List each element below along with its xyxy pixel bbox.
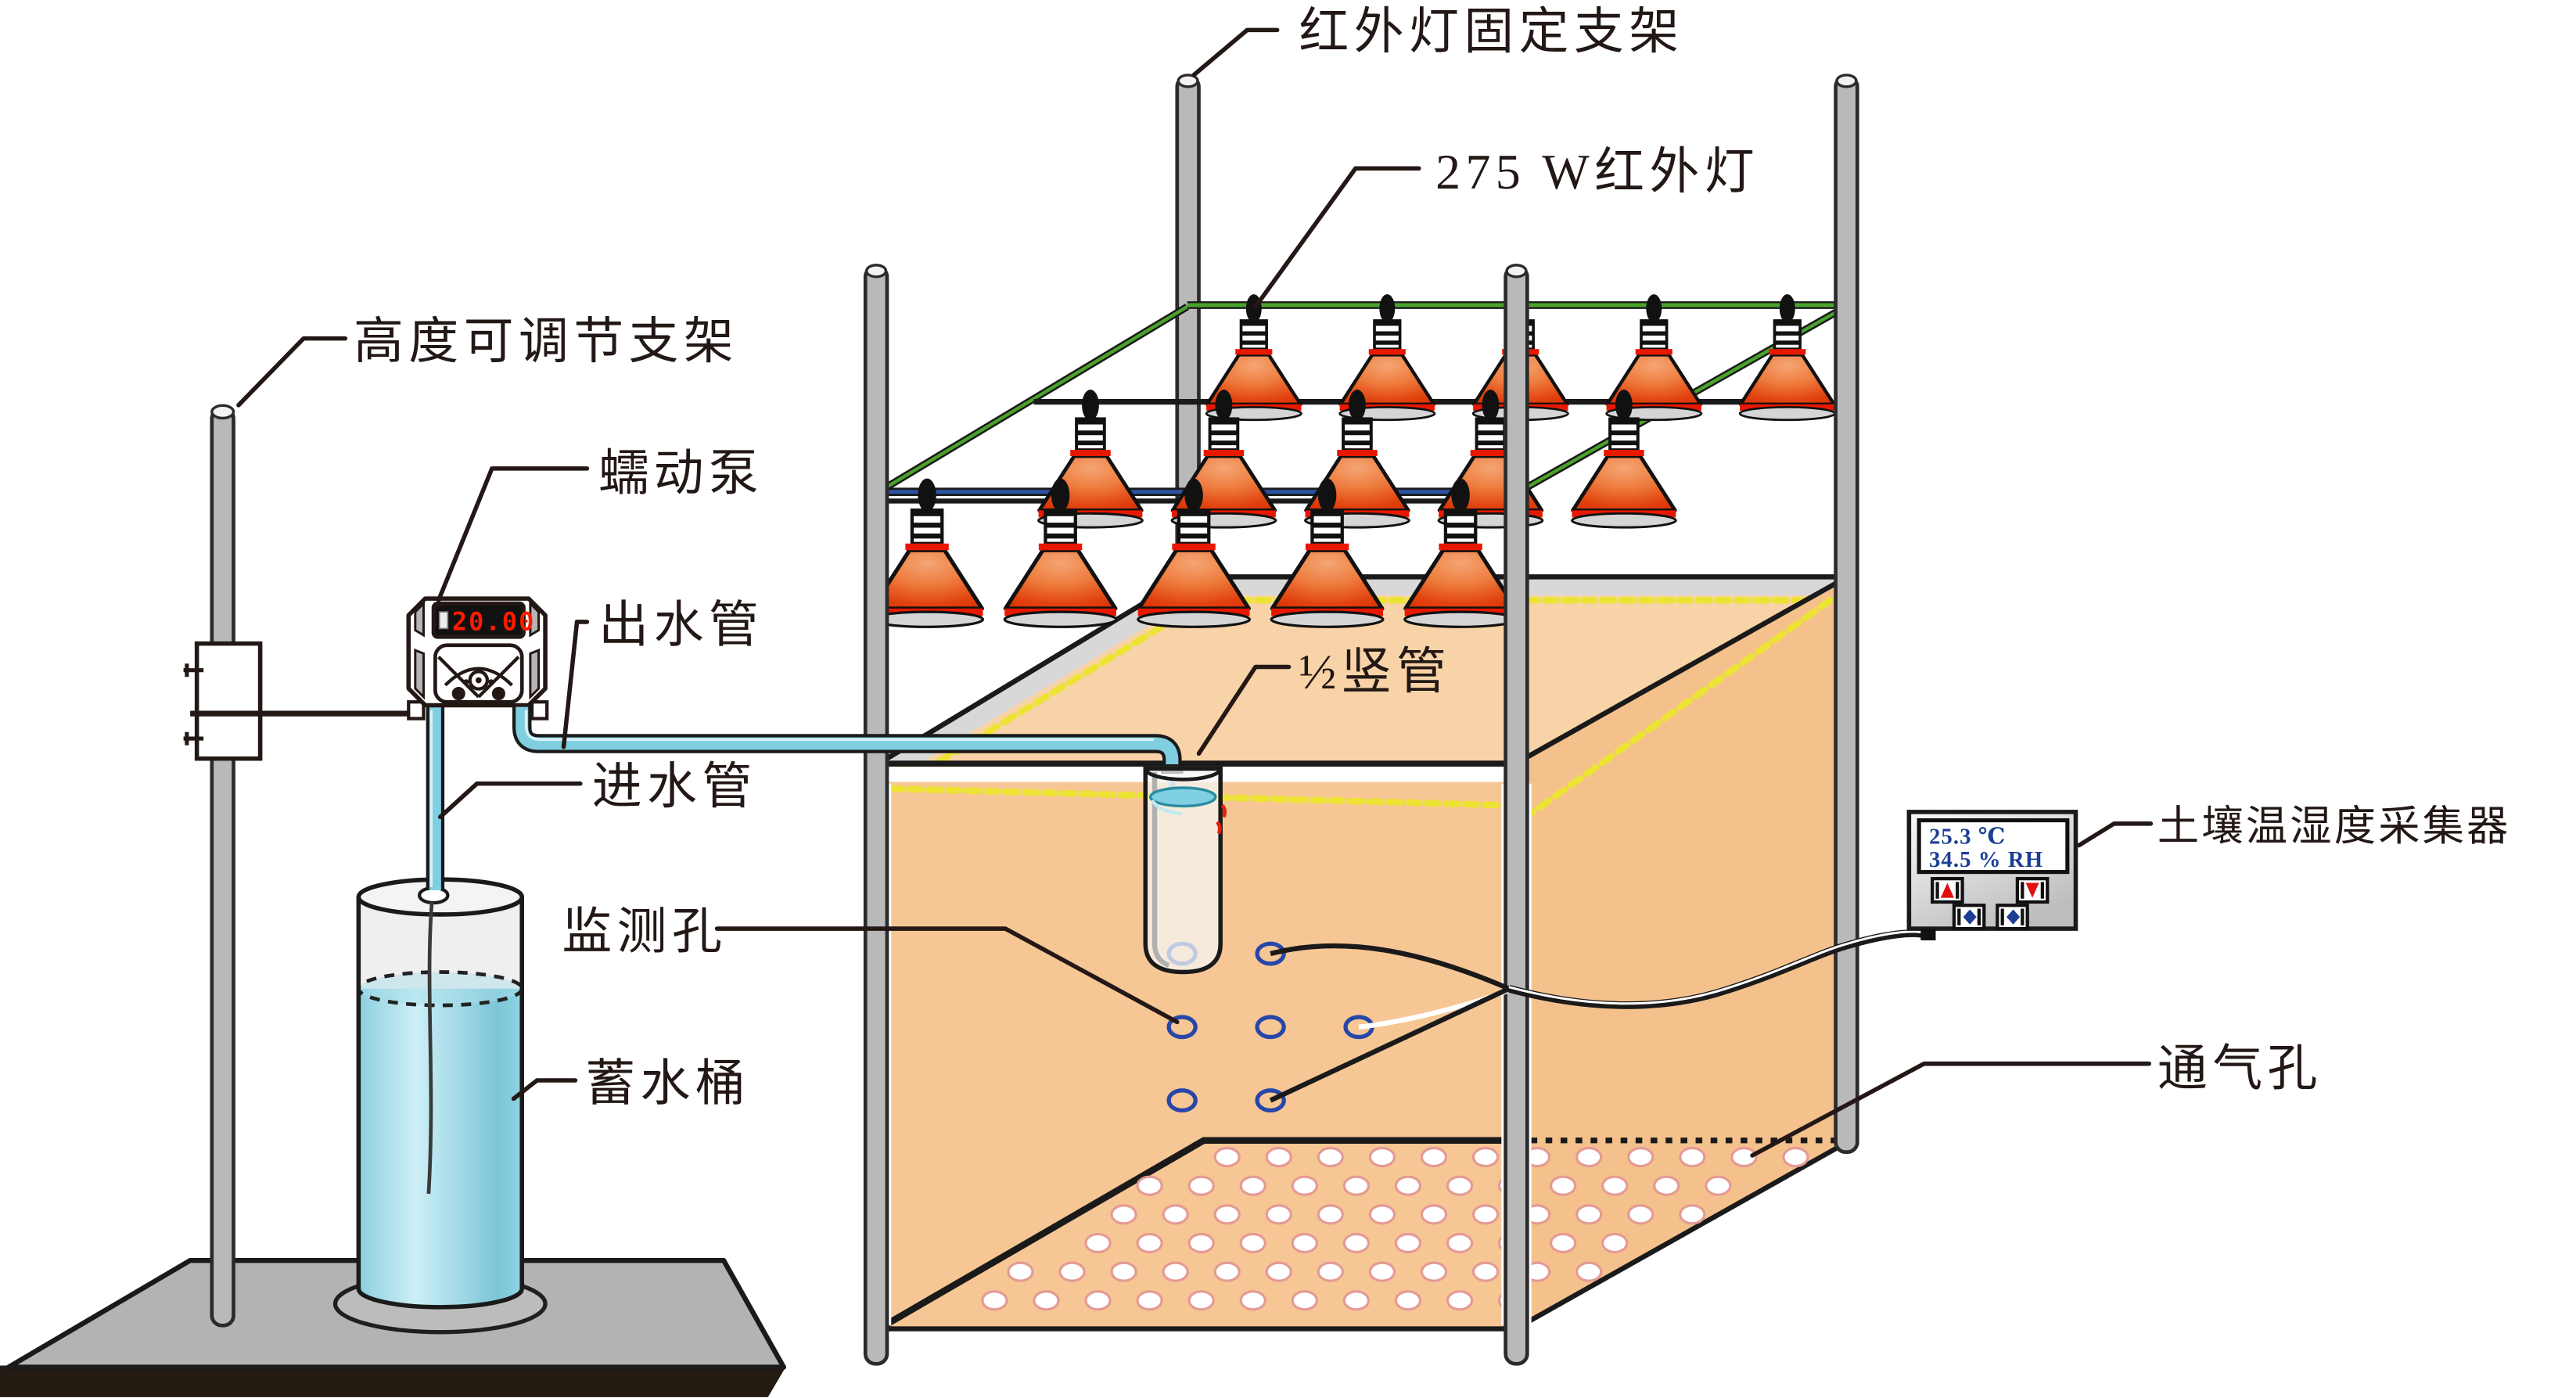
vent-hole [1473, 1148, 1497, 1166]
lamp-cone [1406, 550, 1516, 609]
lamp-hook-icon [1216, 390, 1233, 421]
vent-hole [1421, 1148, 1446, 1166]
vent-hole [1396, 1234, 1420, 1252]
leader-infrared-lamp [1256, 168, 1419, 307]
pump-head [435, 645, 522, 702]
socket-stripe [1241, 321, 1267, 326]
frame-pole-front-left [865, 267, 887, 1364]
sensor-button-left[interactable] [1954, 905, 1984, 929]
lamp-hook-icon [1082, 390, 1099, 421]
lamp-hook-icon [1482, 390, 1500, 421]
stand-pole-cap [212, 405, 234, 418]
frame-pole-front-right [1506, 267, 1528, 1364]
apparatus-diagram: 20.00 [0, 0, 2576, 1398]
socket-stripe [1610, 419, 1638, 424]
bucket-water [358, 989, 522, 1307]
lamp-bulb-face [1138, 612, 1250, 627]
socket-stripe [1343, 440, 1371, 445]
vent-hole [1706, 1177, 1730, 1195]
vent-hole [1447, 1234, 1471, 1252]
socket-stripe [1241, 332, 1267, 336]
vent-hole [1551, 1177, 1575, 1195]
socket-stripe [1076, 430, 1105, 435]
lamp-collar [1306, 544, 1349, 551]
socket-stripe [1446, 523, 1475, 527]
socket-stripe [1446, 534, 1475, 538]
lamp-cone [1272, 550, 1382, 609]
socket-stripe [1477, 419, 1505, 424]
vent-hole [1447, 1177, 1471, 1195]
pump-foot-left [408, 702, 423, 718]
vent-hole [1577, 1148, 1601, 1166]
vent-hole [1370, 1148, 1394, 1166]
label-outlet: 出水管 [598, 598, 763, 653]
socket-stripe [1045, 510, 1075, 516]
socket-stripe [1179, 510, 1209, 516]
pump-display-indicator [440, 612, 448, 628]
lamp-hook-icon [1646, 294, 1662, 322]
leader-lamp-bracket [1194, 30, 1277, 75]
label-standpipe: ½竖管 [1299, 644, 1451, 699]
socket-stripe [1610, 430, 1638, 435]
lamp-bulb-face [1572, 513, 1676, 527]
inlet-tube [431, 707, 435, 890]
stand-pole [212, 408, 234, 1325]
vent-hole [1396, 1292, 1420, 1310]
vent-hole [1473, 1206, 1497, 1224]
leader-adjustable-stand [239, 339, 345, 405]
vent-hole [1215, 1148, 1239, 1166]
lamp-bulb-face [1405, 612, 1517, 627]
vent-hole [1215, 1206, 1239, 1224]
vent-hole [1629, 1148, 1653, 1166]
lamp-bulb-face [1004, 612, 1116, 627]
vent-hole [1241, 1292, 1265, 1310]
vent-hole [1396, 1177, 1420, 1195]
socket-stripe [1374, 332, 1400, 336]
label-infrared-lamp: 275 W红外灯 [1435, 144, 1759, 199]
socket-stripe [1477, 430, 1505, 435]
vent-hole [1292, 1234, 1317, 1252]
vent-hole [1241, 1234, 1265, 1252]
lamp-cone [1005, 550, 1116, 609]
lamp-collar [1204, 450, 1245, 456]
vent-hole [1086, 1234, 1110, 1252]
lamp-collar [1039, 544, 1082, 551]
sensor-cable-port [1920, 929, 1935, 940]
lamp-cone [1139, 550, 1249, 609]
socket-stripe [1641, 321, 1667, 326]
socket-stripe [1374, 340, 1400, 344]
vent-hole [1680, 1206, 1705, 1224]
vent-hole [1473, 1263, 1497, 1281]
vent-hole [1680, 1148, 1705, 1166]
socket-stripe [1241, 340, 1267, 344]
vent-hole [1577, 1206, 1601, 1224]
lamp-collar [1769, 349, 1805, 354]
vent-hole [1603, 1234, 1627, 1252]
socket-stripe [1774, 321, 1800, 326]
label-lamp-bracket: 红外灯固定支架 [1299, 4, 1683, 59]
label-inlet: 进水管 [592, 759, 757, 814]
lamp-collar [1070, 450, 1111, 456]
vent-hole [1577, 1263, 1601, 1281]
lamp-bulb-face [1740, 407, 1834, 419]
diagram-canvas: 20.00 [0, 0, 2576, 1398]
lamp-hook-icon [1379, 294, 1395, 322]
lamp-bulb-face [1271, 612, 1383, 627]
lamp-hook-icon [1615, 390, 1633, 421]
label-sensor: 土壤温湿度采集器 [2157, 803, 2511, 850]
vent-hole [1370, 1263, 1394, 1281]
soil-sensor-device: 25.3 ℃ 34.5 % RH [1909, 812, 2075, 940]
sensor-button-down[interactable] [2017, 879, 2047, 902]
vent-hole [1241, 1177, 1265, 1195]
vent-hole [1163, 1263, 1187, 1281]
lamp-hook-icon [1451, 479, 1469, 512]
vent-hole [1189, 1292, 1213, 1310]
vent-hole [1421, 1206, 1446, 1224]
water-surface-line [358, 972, 522, 1005]
label-monitoring-holes: 监测孔 [562, 904, 727, 960]
socket-stripe [1641, 332, 1667, 336]
socket-stripe [1210, 419, 1238, 424]
lamp-hook-icon [918, 479, 936, 512]
lamp-cone [1573, 456, 1676, 510]
lamp-hook-icon [1780, 294, 1795, 322]
vent-hole [1551, 1234, 1575, 1252]
lamp-collar [1337, 450, 1378, 456]
standpipe-water [1151, 788, 1216, 806]
vent-hole [1603, 1177, 1627, 1195]
socket-stripe [912, 510, 942, 516]
socket-stripe [1312, 510, 1342, 516]
frame-pole-front-right-cap [1507, 265, 1526, 277]
sensor-button-up[interactable] [1932, 879, 1962, 902]
vent-hole [1784, 1148, 1808, 1166]
vent-hole [1344, 1292, 1368, 1310]
vent-hole [1112, 1206, 1136, 1224]
socket-stripe [1210, 440, 1238, 445]
vent-hole [1370, 1206, 1394, 1224]
socket-stripe [1774, 340, 1800, 344]
pump-display-value: 20.00 [452, 607, 536, 637]
inlet-tube-submerged [429, 902, 432, 1194]
frame-pole-front-left-cap [867, 265, 886, 277]
sensor-humidity: 34.5 % RH [1929, 847, 2043, 872]
vent-hole [1344, 1234, 1368, 1252]
water-bucket [358, 879, 522, 1307]
lamp-hook-icon [1318, 479, 1336, 512]
vent-hole [1189, 1234, 1213, 1252]
vent-hole [1163, 1206, 1187, 1224]
frame-pole-back-right-cap [1837, 75, 1856, 87]
vent-hole [1266, 1263, 1291, 1281]
vent-hole [1008, 1263, 1033, 1281]
socket-stripe [1446, 510, 1475, 516]
socket-stripe [1076, 419, 1105, 424]
socket-stripe [1076, 440, 1105, 445]
vent-hole [1266, 1206, 1291, 1224]
lamp-collar [905, 544, 948, 551]
socket-stripe [1179, 534, 1209, 538]
lamp-collar [1604, 450, 1644, 456]
socket-stripe [1312, 534, 1342, 538]
standpipe [1145, 768, 1224, 972]
sensor-temperature: 25.3 ℃ [1929, 824, 2006, 849]
leader-inlet [440, 784, 580, 818]
sensor-button-right[interactable] [1997, 905, 2027, 929]
vent-hole [983, 1292, 1007, 1310]
peristaltic-pump: 20.00 [408, 598, 547, 718]
lamp-collar [1172, 544, 1215, 551]
socket-stripe [1610, 440, 1638, 445]
socket-stripe [1374, 321, 1400, 326]
socket-stripe [1477, 440, 1505, 445]
vent-hole [1344, 1177, 1368, 1195]
lamp-collar [1369, 349, 1406, 354]
vent-hole [1292, 1292, 1317, 1310]
lamp-collar [1636, 349, 1672, 354]
left-stand-assembly [0, 405, 784, 1395]
socket-stripe [1312, 523, 1342, 527]
socket-stripe [1179, 523, 1209, 527]
vent-hole [1086, 1292, 1110, 1310]
vent-hole [1292, 1177, 1317, 1195]
vent-hole [1137, 1234, 1162, 1252]
vent-hole [1318, 1148, 1342, 1166]
vent-hole [1189, 1177, 1213, 1195]
socket-stripe [912, 534, 942, 538]
label-vent-holes: 通气孔 [2157, 1040, 2323, 1096]
label-bucket: 蓄水桶 [585, 1056, 750, 1112]
vent-hole [1060, 1263, 1084, 1281]
vent-hole [1421, 1263, 1446, 1281]
leader-sensor [2079, 824, 2151, 846]
socket-stripe [912, 523, 942, 527]
vent-hole [1318, 1206, 1342, 1224]
height-clamp [197, 644, 260, 759]
socket-stripe [1045, 534, 1075, 538]
lamp-hook-icon [1051, 479, 1069, 512]
vent-hole [1137, 1177, 1162, 1195]
vent-hole [1447, 1292, 1471, 1310]
leader-outlet [563, 622, 587, 747]
vent-hole [1034, 1292, 1058, 1310]
socket-stripe [1045, 523, 1075, 527]
leader-pump [439, 469, 587, 600]
socket-stripe [1210, 430, 1238, 435]
vent-hole [1629, 1206, 1653, 1224]
lamp-collar [1439, 544, 1482, 551]
vent-hole [1215, 1263, 1239, 1281]
lamp-hook-icon [1184, 479, 1202, 512]
label-pump: 蠕动泵 [598, 446, 763, 501]
pump-vent-bl [415, 650, 424, 697]
frame-pole-back-right [1836, 77, 1858, 1152]
pump-foot-right [532, 702, 547, 718]
vent-hole [1654, 1177, 1679, 1195]
vent-hole [1266, 1148, 1291, 1166]
lamp-collar [1235, 349, 1272, 354]
socket-stripe [1343, 419, 1371, 424]
socket-stripe [1343, 430, 1371, 435]
socket-stripe [1774, 332, 1800, 336]
vent-hole [1137, 1292, 1162, 1310]
vent-hole [1112, 1263, 1136, 1281]
socket-stripe [1641, 340, 1667, 344]
vent-hole [1318, 1263, 1342, 1281]
label-adjustable-stand: 高度可调节支架 [354, 314, 738, 369]
pump-vent-br [530, 650, 539, 697]
lamp-hook-icon [1349, 390, 1366, 421]
